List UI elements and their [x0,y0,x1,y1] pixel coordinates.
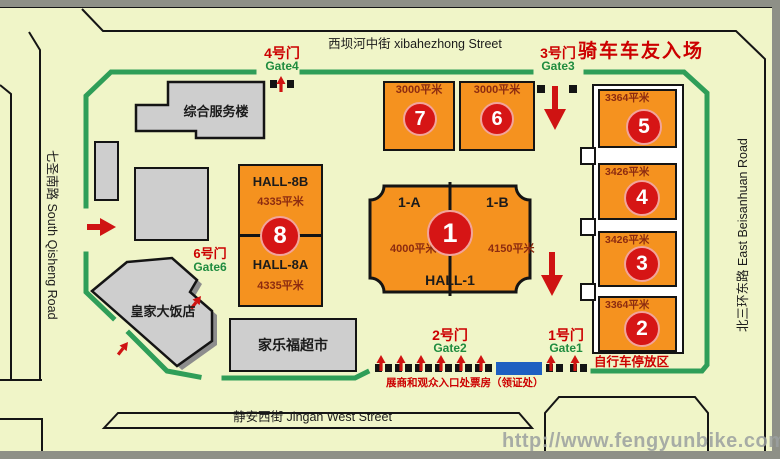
gate6-label-en: Gate6 [186,261,234,275]
bike-parking-label: 自行车停放区 [594,355,669,369]
gate4-arrow-icon [277,76,286,92]
hall-8a-label: HALL-8A [240,258,321,273]
right-edge-bar [772,0,780,459]
hall-connector [580,218,596,236]
hall-4-number: 4 [624,180,660,216]
service-building-label: 综合服务楼 [156,101,276,120]
supermarket-building: 家乐福超市 [229,318,357,372]
gate1-label-en: Gate1 [540,342,592,356]
hall-connector [580,147,596,165]
hall-6-number: 6 [480,102,514,136]
gate3-label-en: Gate3 [532,60,584,74]
street-label-north: 西坝河中街 xibahezhong Street [315,37,515,51]
hall-8b-area: 4335平米 [240,196,321,209]
exhibition-venue-map: 西坝河中街 xibahezhong Street 七圣南路 South Qish… [0,0,780,459]
hall-8-number: 8 [260,216,300,256]
hall-5-number: 5 [626,109,662,145]
hall-1-number: 1 [427,210,473,256]
hall-connector [580,283,596,301]
hall-1a-label: 1-A [398,194,421,210]
hall-1b-label: 1-B [486,194,509,210]
corridor-down-arrow-icon [541,252,563,296]
visitors-entrance-label: 展商和观众入口处 [386,377,470,389]
west-entry-arrow-icon [87,218,116,236]
hall-5-area: 3364平米 [605,92,649,104]
gate2-label-en: Gate2 [424,342,476,356]
hall-3-number: 3 [624,246,660,282]
street-label-west: 七圣南路 South Qisheng Road [44,150,63,320]
gate3-down-arrow-icon [544,86,566,130]
hall-3-area: 3426平米 [605,234,649,246]
southwest-arrow-icon [115,339,132,357]
ticket-office-label: 票房（领证处） [470,377,544,389]
supermarket-label: 家乐福超市 [258,335,328,355]
hall-4-area: 3426平米 [605,166,649,178]
small-building-1 [95,142,118,200]
riders-entrance-note: 骑车车友入场 [578,41,704,63]
small-building-2 [135,168,208,240]
hall-8a-area: 4335平米 [240,280,321,293]
street-label-east: 北三环东路 East Beisanhuan Road [732,138,751,332]
hall-2-area: 3364平米 [605,299,649,311]
hall-7-area: 3000平米 [383,84,455,97]
hall-1-label: HALL-1 [405,272,495,288]
hall-8b-label: HALL-8B [240,175,321,190]
hotel-label: 皇家大饭店 [113,301,213,320]
hall-6-area: 3000平米 [459,84,535,97]
top-edge-bar [0,0,780,7]
ticket-office-box [496,362,542,375]
watermark-url: http://www.fengyunbike.com [502,430,780,453]
street-label-south: 静安西街 Jingan West Street [225,410,400,424]
hall-1b-area: 4150平米 [488,243,534,256]
gate4-label-en: Gate4 [256,60,308,74]
hall-2-number: 2 [624,311,660,347]
hall-7-number: 7 [403,102,437,136]
